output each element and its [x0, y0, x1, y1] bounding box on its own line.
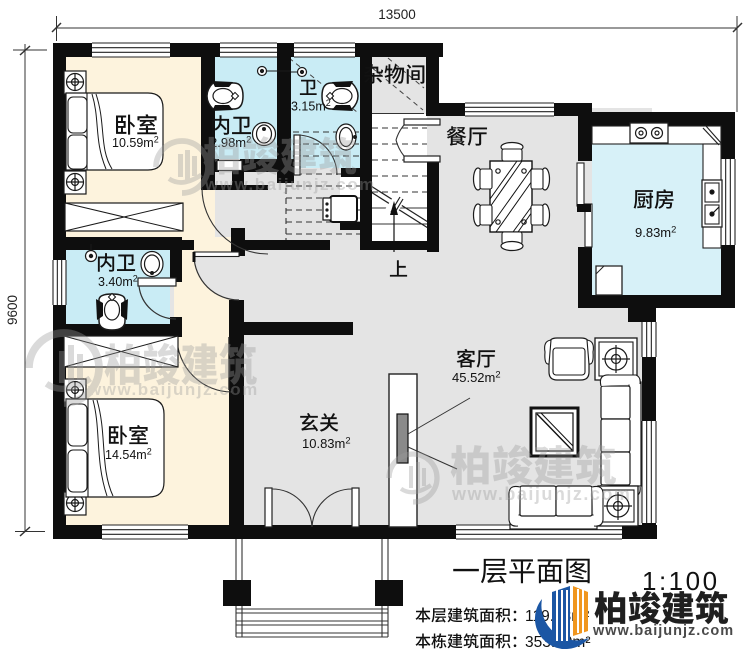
- svg-text:3.15m2: 3.15m2: [291, 98, 331, 113]
- svg-text:10.83m2: 10.83m2: [302, 435, 351, 452]
- svg-text:www.baijunjz.com: www.baijunjz.com: [592, 623, 734, 639]
- svg-text:3.40m2: 3.40m2: [98, 274, 138, 289]
- svg-text:13500: 13500: [378, 7, 416, 22]
- svg-text:www.baijunjz.com: www.baijunjz.com: [204, 175, 376, 194]
- svg-text:9600: 9600: [5, 295, 20, 325]
- svg-text:45.52m2: 45.52m2: [452, 369, 501, 386]
- svg-text:www.baijunjz.com: www.baijunjz.com: [87, 380, 259, 399]
- svg-text:9.83m2: 9.83m2: [635, 224, 676, 241]
- svg-text:14.54m2: 14.54m2: [105, 447, 152, 462]
- svg-text:10.59m2: 10.59m2: [112, 135, 159, 150]
- svg-text:www.baijunjz.com: www.baijunjz.com: [451, 484, 631, 504]
